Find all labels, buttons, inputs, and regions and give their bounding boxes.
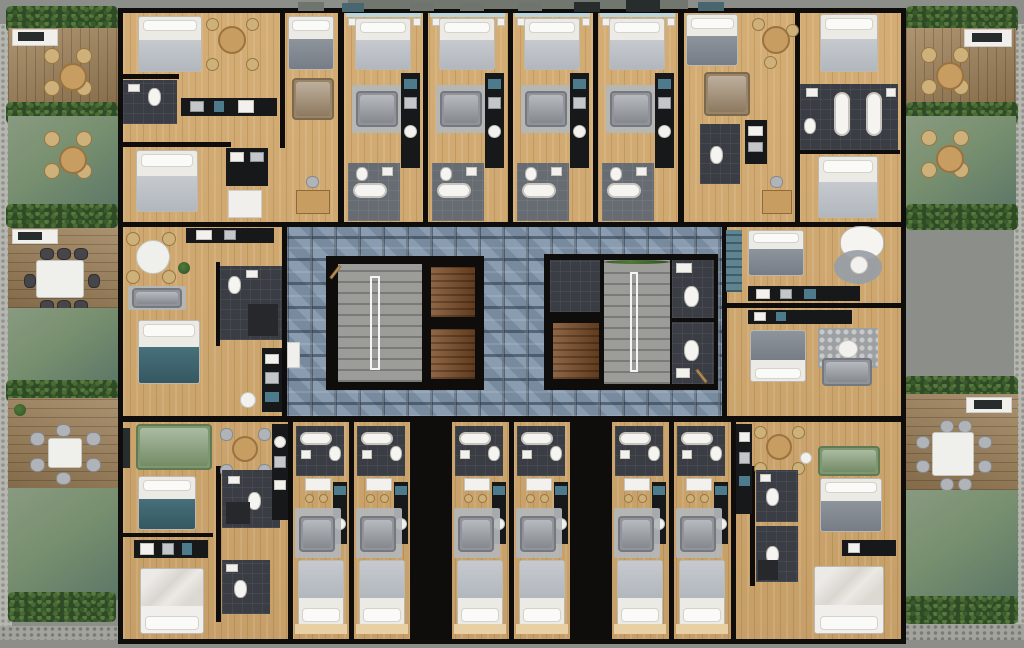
apt-tl-fridge [228,190,262,218]
studio-t2-sink [466,167,477,176]
terrace-r1-chair [953,47,969,63]
studio-t1-appliance [404,79,417,89]
suite-rm1-appliance [804,289,816,299]
terrace-r1-chair [921,47,937,63]
studio-t3-bathtub [522,183,556,198]
terrace-l2-bbq-grill [18,232,42,240]
apt-ml-toilet [228,276,241,294]
suite-rm1-rug-center [850,256,868,274]
studio-b5-sink [620,450,630,459]
wall-tl-inner [123,142,231,147]
core-right-storage [550,260,600,312]
terrace-r1-chair [921,79,937,95]
studio-b3-sink [460,450,470,459]
core-wc-toilet [684,286,699,307]
terrace-r2-chair [916,460,930,473]
studio-b4-stool [526,494,535,503]
roof-vent [460,3,484,11]
studio-t3-appliance [573,79,586,89]
suite-rm2-bed [750,330,806,382]
apt-tl-chair [246,58,259,71]
terrace-l3-plant [14,404,26,416]
wall-tl-inner [280,13,285,148]
studio-t2-nightstand [497,18,505,26]
terrace-l2-chair [74,248,88,260]
apt-bl-bed-teal [138,476,196,530]
apt-bl-dining-table [232,436,258,462]
studio-b5-stool [624,494,633,503]
terrace-l1-chair [44,80,60,96]
gravel-bottom-right [890,624,1024,640]
wall-tl-inner [123,74,179,79]
studio-t3-sofa [525,91,567,127]
wall-bottom-studio [509,422,514,640]
apt-bl-bed-marble [140,568,204,634]
studio-t2-bathtub [437,183,471,198]
apt-ml-chair [162,270,176,284]
studio-t3-toilet [525,167,537,181]
studio-b3-vanity [464,478,490,491]
studio-b4-stool [540,494,549,503]
studio-t4-toilet [610,167,622,181]
apt-tr-sink [806,88,818,97]
apt-bl-tv-wall [123,428,130,468]
studio-t2-sofa [440,91,482,127]
apt-tr-appliance [748,126,763,136]
apt-br-appliance [739,476,750,486]
studio-b4-toilet [550,446,562,461]
apt-bl-appliance [274,480,286,490]
apt-tl2-chair [306,176,319,188]
studio-b5-bed [617,560,663,626]
studio-b6-stool [700,494,709,503]
apt-tl-appliance [214,101,224,112]
roof-vent [298,2,324,11]
studio-b1-toilet [329,446,341,461]
terrace-l1-chair [76,48,92,64]
studio-t2-balcony-glass [430,13,505,17]
apt-tr-bed2 [820,14,878,72]
terrace-l3-chair [30,432,45,446]
studio-t1-sofa [356,91,398,127]
studio-b4-sofa [520,516,556,552]
studio-b4-vanity [526,478,552,491]
apt-tl2-desk [296,190,330,214]
studio-b3-bed [457,560,503,626]
roof-vent [626,0,660,12]
wall-bl-bath [216,556,221,622]
apt-bl-washer [274,436,286,448]
apt-bl-sink [226,564,238,572]
studio-t1-nightstand [413,18,421,26]
terrace-l1-lawn-table [59,146,87,174]
apt-tr-chair [752,18,765,31]
suite-rm2-sofa [822,358,872,386]
apt-tl-dining-table [218,26,246,54]
terrace-l2-chair [88,274,100,288]
terrace-l1-lawn-chair [76,131,92,147]
suite-rm2-media [838,340,858,358]
terrace-r2-lawn [906,490,1018,600]
studio-b1-bathtub [300,432,332,445]
terrace-l3-chair [56,472,71,485]
apt-tr-bed3 [818,156,878,218]
apt-br-shower [758,560,778,580]
elevator-cabin [550,320,602,382]
wall-top-studio [508,13,513,223]
apt-tl-chair [206,18,219,31]
apt-br-chair [792,426,805,439]
studio-t1-balcony-glass [346,13,421,17]
apt-br-toilet [766,488,779,506]
studio-b6-sofa [680,516,716,552]
studio-b1-appliance [334,486,346,495]
apt-ml-sofa [132,288,182,308]
studio-b1-stool [305,494,314,503]
terrace-l2-table [36,260,84,298]
studio-t4-appliance [658,79,671,89]
apt-ml-appliance [224,230,236,240]
apt-tr-desk [762,190,792,214]
terrace-r1-lawn-chair [921,162,937,178]
studio-b5-vanity [624,478,650,491]
apt-tl-appliance [238,100,254,113]
apt-tr-tub [866,92,882,136]
apt-br-dining-table [766,434,792,460]
core-wc-sink [676,263,692,273]
apt-br-sofa [818,446,880,476]
apt-tl-toilet [148,88,161,106]
apt-bl-toilet [234,580,247,598]
apt-ml-bed [138,320,200,384]
wall-bl-bath [216,466,221,560]
studio-t3-washer [573,125,586,138]
studio-b1-balcony [295,624,347,634]
corridor-closet [287,342,300,368]
studio-b2-toilet [390,446,402,461]
studio-b2-stool [380,494,389,503]
suite-rm-closet [726,230,742,292]
core-left-stair-rail [370,276,380,370]
studio-b1-vanity [305,478,331,491]
terrace-l3-chair [30,458,45,472]
roof-vent [410,3,434,11]
apt-ml-appliance [265,354,279,364]
suite-rm2-appliance [776,312,786,321]
terrace-l3-chair [86,458,101,472]
apt-ml-appliance [265,392,279,402]
studio-t4-balcony-glass [600,13,675,17]
terrace-l1-bbq-grill [18,32,44,41]
roof-vent [342,3,364,12]
terrace-l1-lawn-chair [44,131,60,147]
studio-t1-sink [382,167,393,176]
wall-bottom-studio [669,422,674,640]
studio-t1-washer [404,125,417,138]
apt-ml-sink [196,230,212,240]
apt-br-appliance [739,432,750,442]
studio-b1-sink [301,450,311,459]
wall-top-studio [593,13,598,223]
wall-tr-inner [800,150,900,154]
studio-t4-sofa [610,91,652,127]
suite-rm1-appliance [756,289,770,299]
apt-ml-chair [126,232,140,246]
studio-b2-bed [359,560,405,626]
apt-tr-chair [764,56,777,69]
studio-t3-bed [524,18,580,70]
apt-bl-chair [220,428,233,441]
apt-ml-shower [248,304,278,336]
roof-vent [698,2,724,11]
studio-t1-nightstand [348,18,356,26]
studio-t3-balcony-glass [515,13,590,17]
elevator-cabin [428,264,478,320]
terrace-l1-hedge-bot [6,204,118,228]
apt-bl-sink [228,476,240,484]
studio-b4-balcony [516,624,568,634]
terrace-r1-hedge-bot [906,204,1018,230]
studio-b2-vanity [366,478,392,491]
apt-tr-toilet [710,146,723,164]
terrace-l1-table [59,63,87,91]
studio-t3-sink [551,167,562,176]
suite-rm1-appliance [780,289,792,299]
terrace-r2-chair [916,436,930,449]
studio-b3-sofa [458,516,494,552]
apt-bl-appliance [162,543,174,555]
apt-tl-appliance [190,101,204,112]
studio-t4-sink [636,167,647,176]
apt-br-chair [754,426,767,439]
apt-br-bed-gray [820,478,882,532]
core-left-stairwell [338,264,422,382]
studio-b5-appliance [653,486,665,495]
apt-tr-chair [770,176,783,188]
terrace-l3-hedge [8,592,116,622]
terrace-r2-bbq-grill [974,400,1002,409]
wall-rm-divider [727,303,902,308]
shaft-bottom [410,420,452,642]
apt-tr-sink [886,88,896,97]
studio-t2-washer [488,125,501,138]
apt-ml-washer [240,392,256,408]
studio-b4-appliance [555,486,567,495]
studio-b2-sofa [360,516,396,552]
studio-t4-washer [658,125,671,138]
terrace-r2-chair [978,436,992,449]
wall-ml-corridor [282,227,287,417]
apt-ml-round-table [136,240,170,274]
apt-tr-bed [686,14,738,66]
studio-t4-nightstand [602,18,610,26]
terrace-r1-lawn-chair [953,130,969,146]
apt-tl-closet-item [250,152,264,162]
shaft-bottom [570,420,612,642]
studio-b2-sink [362,450,372,459]
studio-b2-appliance [395,486,407,495]
apt-tl-closet-item [230,152,244,162]
terrace-l1-chair [44,48,60,64]
terrace-l3-lawn [8,488,120,600]
terrace-r2-chair [978,460,992,473]
studio-t2-appliance [488,79,501,89]
apt-ml-plant [178,262,190,274]
studio-t3-nightstand [517,18,525,26]
apt-bl-appliance [140,543,154,555]
studio-b2-bathtub [361,432,393,445]
studio-t3-nightstand [582,18,590,26]
studio-t4-appliance [658,97,671,109]
floor-plan [0,0,1024,648]
studio-b3-bathtub [459,432,491,445]
studio-b6-sink [682,450,692,459]
apt-bl-shower [226,502,250,524]
studio-b5-toilet [648,446,660,461]
studio-b4-sink [522,450,532,459]
apt-bl-sofa [136,424,212,470]
wall-top-studio [423,13,428,223]
studio-t3-appliance [573,97,586,109]
studio-t1-bed [355,18,411,70]
suite-rm2-appliance [754,312,766,321]
apt-bl-appliance [274,456,286,468]
studio-b1-sofa [299,516,335,552]
studio-b5-bathtub [619,432,651,445]
apt-tr-dining-table [762,26,790,54]
wall-bl-kitchen [123,533,213,537]
apt-br-coffee-table [800,452,812,464]
wall-bottom-studio [288,422,293,640]
studio-b4-bathtub [521,432,553,445]
roof-vent [518,3,542,11]
apt-ml-appliance [265,372,279,384]
terrace-r1-table [936,62,964,90]
studio-b6-toilet [710,446,722,461]
studio-b5-sofa [618,516,654,552]
apt-tl-chair [206,58,219,71]
studio-b4-bed [519,560,565,626]
studio-b6-vanity [686,478,712,491]
studio-t2-appliance [488,97,501,109]
studio-b1-stool [319,494,328,503]
roof-vent [574,2,600,12]
terrace-r2-hedge-bot [904,596,1018,624]
studio-t1-appliance [404,97,417,109]
core-wc-sink [676,368,690,378]
terrace-l2-chair [24,274,36,288]
apt-ml-sink [246,270,258,278]
studio-b3-balcony [454,624,506,634]
terrace-l2-chair [40,248,54,260]
apt-ml-chair [126,270,140,284]
studio-t4-bed [609,18,665,70]
studio-b3-toilet [488,446,500,461]
terrace-r2-table [932,432,974,476]
apt-tl-chair [246,18,259,31]
studio-b1-bed [298,560,344,626]
studio-t4-bathtub [607,183,641,198]
apt-br-bed-marble [814,566,884,634]
studio-b6-bed [679,560,725,626]
studio-t1-bathtub [353,183,387,198]
studio-t4-nightstand [667,18,675,26]
suite-rm1-bed [748,230,804,276]
studio-t2-nightstand [432,18,440,26]
wall-bottom-studio [349,422,354,640]
terrace-l3-chair [86,432,101,446]
studio-b6-stool [686,494,695,503]
terrace-r1-lawn-chair [921,130,937,146]
apt-br-closet-item [848,543,860,553]
terrace-l3-chair [56,424,71,437]
elevator-cabin [428,326,478,382]
apt-br-appliance [739,452,750,464]
core-right-stair-rail [630,272,638,372]
studio-b3-appliance [493,486,505,495]
studio-t2-bed [439,18,495,70]
apt-tr-toilet [804,118,816,134]
studio-b5-balcony [614,624,666,634]
studio-b6-bathtub [681,432,713,445]
apt-tr-sofa [704,72,750,116]
wall-top-studio [678,13,684,223]
studio-b3-stool [478,494,487,503]
studio-t2-toilet [440,167,452,181]
apt-br-sink [760,474,771,482]
studio-b2-stool [366,494,375,503]
apt-tr-tub [834,92,850,136]
core-right-planter [606,260,668,264]
terrace-l1-lawn-chair [44,163,60,179]
apt-tl-bed [138,16,202,72]
core-wc-toilet [684,340,699,361]
apt-bl-chair [258,428,271,441]
apt-tr-appliance [748,142,763,152]
apt-tl-bed2 [136,150,198,212]
terrace-l2-lawn [8,308,120,384]
terrace-r1-bbq-grill [972,33,1002,42]
studio-b5-stool [638,494,647,503]
terrace-r1-lawn-table [936,145,964,173]
studio-b6-balcony [676,624,728,634]
studio-b6-appliance [715,486,727,495]
apt-tl2-bed [288,16,334,70]
studio-b3-stool [464,494,473,503]
apt-bl-appliance [182,543,192,555]
wall-top-studio [338,13,344,223]
studio-t1-toilet [356,167,368,181]
studio-b2-balcony [356,624,408,634]
apt-tl2-sofa [292,78,334,120]
terrace-l2-chair [57,248,71,260]
terrace-l3-table [48,438,82,468]
apt-tl-sink [128,84,140,92]
